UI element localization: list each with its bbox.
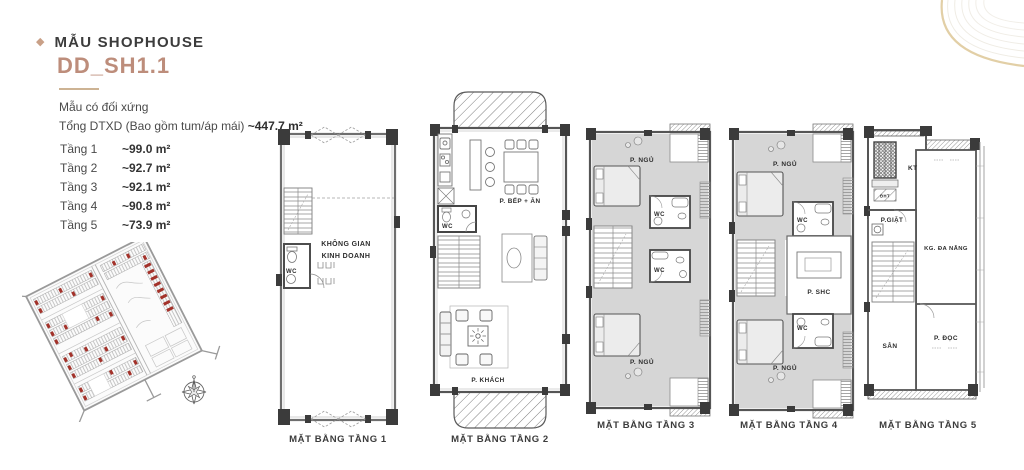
floor-area-row: Tầng 3~92.1 m²	[60, 177, 170, 196]
shc-room	[787, 236, 851, 314]
room-label-shc: P. SHC	[807, 289, 830, 296]
plan-caption-1: MẶT BẰNG TẦNG 1	[276, 434, 400, 445]
floor-area-row: Tầng 1~99.0 m²	[60, 139, 170, 158]
wc-bottom	[650, 250, 690, 282]
dining-set	[504, 140, 538, 194]
room-label-yard: SÂN	[883, 341, 898, 350]
floor-label: Tầng 5	[60, 218, 112, 232]
floor-label: Tầng 1	[60, 142, 112, 156]
floor-value: ~90.8 m²	[122, 199, 170, 213]
floor-plan-4: P. NGỦ WC P. SHC WC P. NGỦ	[729, 122, 861, 420]
floor-value: ~92.1 m²	[122, 180, 170, 194]
room-label-kt: KT	[908, 165, 917, 172]
staircase	[438, 236, 480, 288]
plan-caption-5: MẶT BẰNG TẦNG 5	[864, 420, 992, 431]
floor-label: Tầng 4	[60, 199, 112, 213]
corner-ornament	[914, 0, 1024, 84]
room-label-wc: WC	[797, 218, 808, 224]
room-label-dht: ĐHT	[880, 194, 890, 199]
floor-label: Tầng 3	[60, 180, 112, 194]
diamond-bullet-icon: ◆	[36, 37, 44, 48]
room-label-bedroom: P. NGỦ	[773, 363, 797, 372]
room-label-bedroom: P. NGỦ	[630, 357, 654, 366]
room-label-wc: WC	[797, 326, 808, 332]
total-area-label: Tổng DTXD (Bao gồm tum/áp mái)	[59, 119, 244, 133]
room-label-laundry: P.GIẶT	[881, 215, 904, 224]
subtitle: Mẫu có đối xứng	[59, 100, 316, 114]
title-divider	[59, 88, 99, 90]
floor-label: Tầng 2	[60, 161, 112, 175]
room-label-bedroom: P. NGỦ	[773, 159, 797, 168]
staircase	[737, 240, 775, 296]
category-title: MẪU SHOPHOUSE	[54, 34, 204, 51]
site-master-plan	[22, 242, 222, 422]
room-label-business: KHÔNG GIAN	[321, 239, 371, 248]
floor-value: ~92.7 m²	[122, 161, 170, 175]
room-label-living: P. KHÁCH	[471, 375, 504, 384]
floor-plan-2: P. BẾP + ĂN WC P. KHÁCH	[430, 86, 570, 434]
floor-plan-3: P. NGỦ WC WC P. NGỦ	[586, 122, 718, 418]
floor-area-list: Tầng 1~99.0 m² Tầng 2~92.7 m² Tầng 3~92.…	[60, 139, 170, 234]
room-label-wc: WC	[654, 212, 665, 218]
plan-caption-2: MẶT BẰNG TẦNG 2	[430, 434, 570, 445]
floor-plan-5: KT ĐHT P.GIẶT KG. ĐA NĂNG SÂN P. ĐỌC	[864, 122, 992, 418]
staircase	[872, 242, 914, 302]
balcony-front	[454, 92, 546, 128]
room-label-multipurpose: KG. ĐA NĂNG	[924, 245, 968, 252]
model-code: DD_SH1.1	[57, 53, 316, 79]
room-label-bedroom: P. NGỦ	[630, 155, 654, 164]
living-set	[440, 306, 508, 368]
floor-plan-1: KHÔNG GIAN KINH DOANH WC	[276, 124, 400, 430]
brochure-page: ◆ MẪU SHOPHOUSE DD_SH1.1 Mẫu có đối xứng…	[0, 0, 1024, 470]
tv-console	[502, 234, 547, 282]
compass-rose-icon	[182, 376, 206, 404]
floor-area-row: Tầng 2~92.7 m²	[60, 158, 170, 177]
plan-caption-4: MẶT BẰNG TẦNG 4	[723, 420, 855, 431]
header: ◆ MẪU SHOPHOUSE DD_SH1.1 Mẫu có đối xứng…	[36, 34, 316, 133]
floor-value: ~99.0 m²	[122, 142, 170, 156]
plan-caption-3: MẶT BẰNG TẦNG 3	[580, 420, 712, 431]
room-label-business: KINH DOANH	[322, 253, 371, 260]
room-label-wc: WC	[286, 269, 297, 275]
room-label-wc: WC	[442, 224, 453, 230]
room-label-wc: WC	[654, 268, 665, 274]
floor-area-row: Tầng 4~90.8 m²	[60, 196, 170, 215]
staircase	[284, 188, 312, 234]
room-label-reading: P. ĐỌC	[934, 335, 958, 342]
staircase	[594, 226, 632, 288]
floor-value: ~73.9 m²	[122, 218, 170, 232]
technical-shaft	[872, 142, 898, 201]
balcony-rear	[454, 392, 546, 428]
floor-area-row: Tầng 5~73.9 m²	[60, 215, 170, 234]
